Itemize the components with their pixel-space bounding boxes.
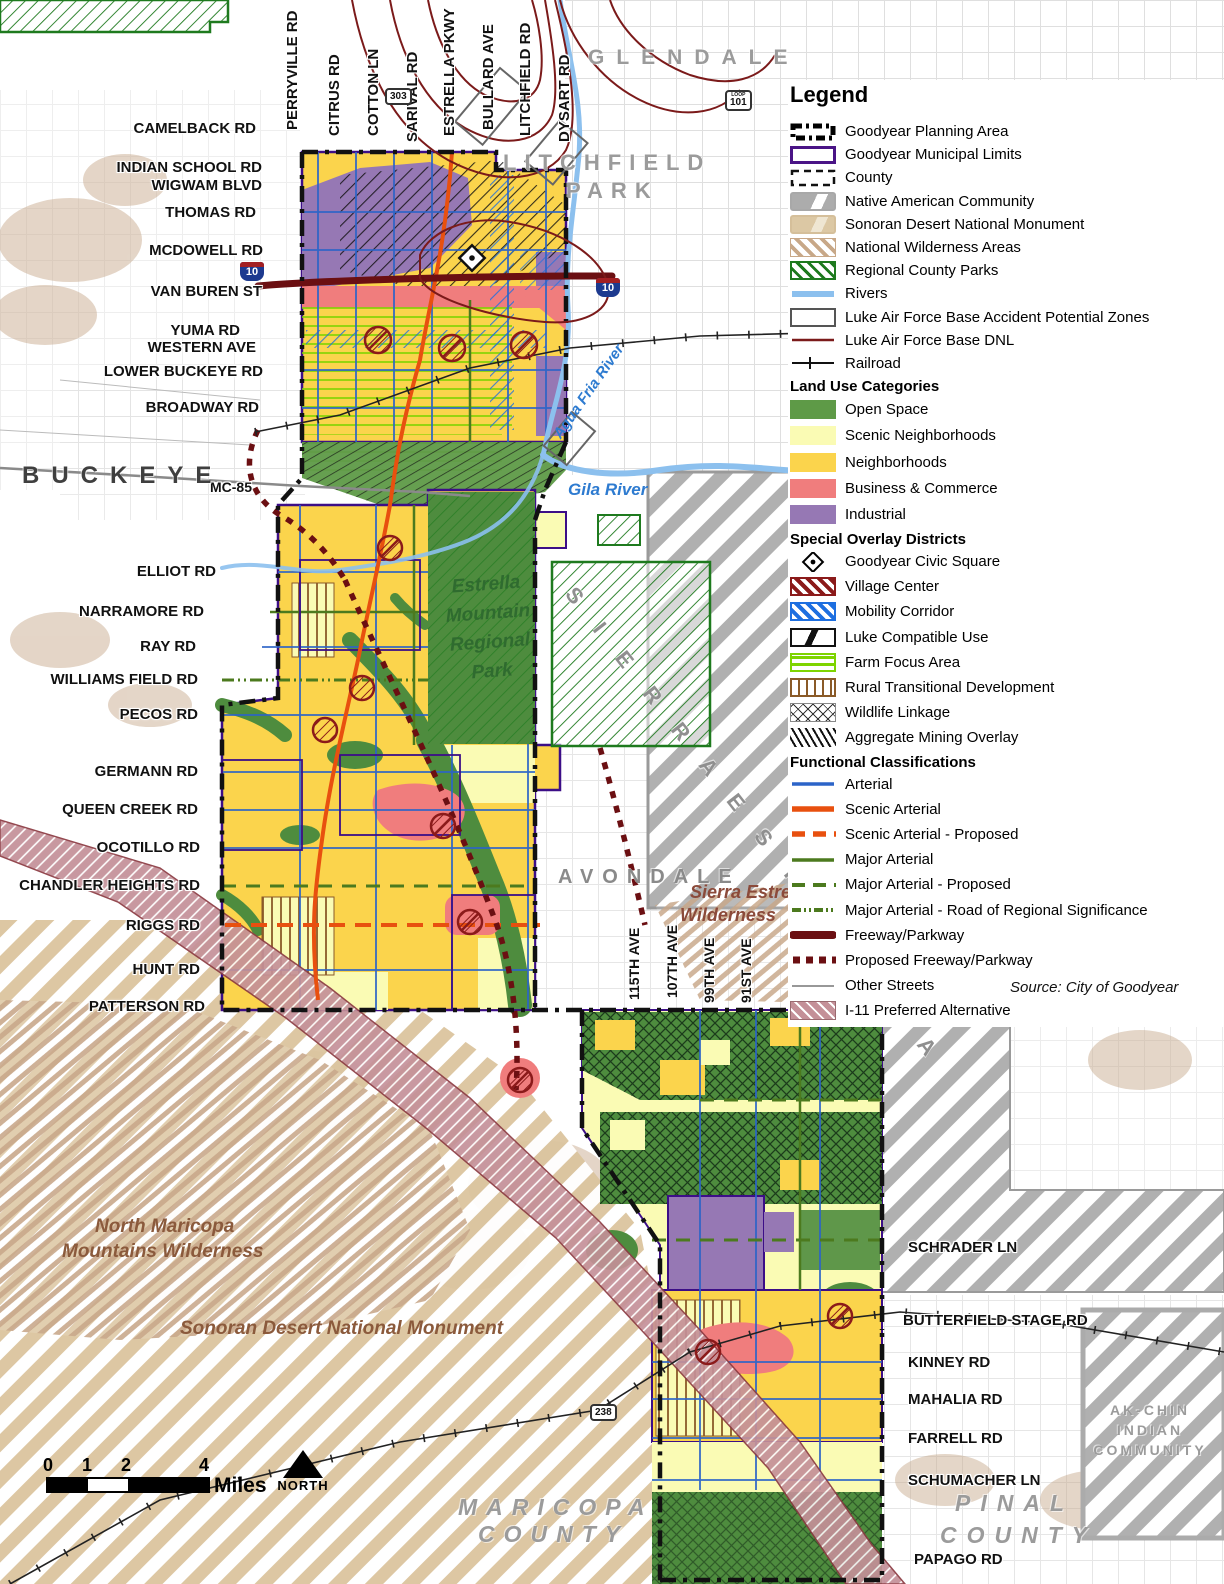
north-arrow: NORTH — [268, 1450, 338, 1493]
legend-item-industrial: Industrial — [790, 502, 1224, 528]
legend-item-luke-compatible: Luke Compatible Use — [790, 625, 1224, 650]
road-label-thomas: THOMAS RD — [165, 204, 256, 221]
i10-shield-west: 10 — [240, 262, 264, 281]
wilderness-label-nmm-2: Mountains Wilderness — [62, 1241, 263, 1263]
rivers-swatch — [790, 284, 836, 304]
mobility-corridor — [490, 175, 514, 430]
mobility-corridor-swatch — [790, 602, 836, 621]
scenic-arterial-swatch — [790, 799, 836, 819]
rural-transitional-swatch — [790, 678, 836, 697]
road-label-schrader: SCHRADER LN — [908, 1239, 1017, 1256]
i11-swatch — [790, 1001, 836, 1020]
legend-item-business-commerce: Business & Commerce — [790, 475, 1224, 501]
north-block — [302, 152, 566, 472]
road-label-papago: PAPAGO RD — [914, 1551, 1003, 1568]
railroad-swatch — [790, 353, 836, 373]
place-maricopa-2: COUNTY — [478, 1521, 629, 1548]
place-pinal-1: PINAL — [955, 1490, 1074, 1517]
legend-item-scenic-arterial: Scenic Arterial — [790, 797, 1224, 822]
legend-item-native-community: Native American Community — [790, 190, 1224, 213]
road-label-bullard: BULLARD AVE — [480, 24, 497, 130]
road-label-western: WESTERN AVE — [148, 339, 256, 356]
road-label-wigwam: WIGWAM BLVD — [151, 177, 262, 194]
place-buckeye: BUCKEYE — [22, 462, 223, 490]
legend-item-i11: I-11 Preferred Alternative — [790, 998, 1224, 1023]
place-litchfield-1: LITCHFIELD — [503, 150, 711, 176]
road-label-camelback: CAMELBACK RD — [134, 120, 257, 137]
scenic-neighborhoods-swatch — [790, 426, 836, 445]
sonoran-monument-swatch — [790, 215, 836, 234]
scale-unit-label: Miles — [214, 1474, 267, 1498]
road-label-williams-field: WILLIAMS FIELD RD — [51, 671, 198, 688]
legend-item-mobility-corridor: Mobility Corridor — [790, 599, 1224, 624]
legend-item-luke-apz: Luke Air Force Base Accident Potential Z… — [790, 306, 1224, 329]
place-pinal-2: COUNTY — [940, 1522, 1097, 1549]
route238-shield: 238 — [590, 1404, 617, 1421]
route303-shield: 303 — [385, 88, 412, 105]
road-label-broadway: BROADWAY RD — [146, 399, 259, 416]
road-label-cotton: COTTON LN — [365, 49, 382, 136]
native-community-swatch — [790, 192, 836, 211]
place-akchin-3: COMMUNITY — [1080, 1442, 1220, 1458]
planning-area-swatch — [790, 122, 836, 142]
legend-item-neighborhoods: Neighborhoods — [790, 449, 1224, 475]
road-label-germann: GERMANN RD — [95, 763, 198, 780]
legend-item-freeway: Freeway/Parkway — [790, 923, 1224, 948]
legend-item-luke-dnl: Luke Air Force Base DNL — [790, 329, 1224, 352]
legend-item-aggregate-mining: Aggregate Mining Overlay — [790, 725, 1224, 750]
legend-item-county-parks: Regional County Parks — [790, 259, 1224, 282]
place-akchin-1: AK-CHIN — [1080, 1402, 1220, 1418]
freeway-swatch — [790, 925, 836, 945]
legend-title: Legend — [790, 82, 1224, 108]
road-label-chandler-heights: CHANDLER HEIGHTS RD — [19, 877, 200, 894]
road-label-91st: 91ST AVE — [738, 938, 754, 1003]
scale-bar-segments — [46, 1477, 210, 1493]
monument-label-sonoran: Sonoran Desert National Monument — [180, 1318, 503, 1340]
regional-park-topleft — [0, 0, 228, 32]
road-label-115th: 115TH AVE — [626, 928, 642, 1000]
road-label-litchfield: LITCHFIELD RD — [517, 23, 534, 136]
road-label-pecos: PECOS RD — [120, 706, 198, 723]
place-glendale: GLENDALE — [588, 46, 800, 70]
industrial-swatch — [790, 505, 836, 524]
place-maricopa-1: MARICOPA — [458, 1494, 654, 1521]
road-label-citrus: CITRUS RD — [326, 54, 343, 136]
municipal-limits-swatch — [790, 146, 836, 164]
i10-shield-east: 10 — [596, 278, 620, 297]
legend-item-planning-area: Goodyear Planning Area — [790, 120, 1224, 143]
place-akchin-2: INDIAN — [1080, 1422, 1220, 1438]
road-label-schumacher: SCHUMACHER LN — [908, 1472, 1041, 1489]
road-label-mahalia: MAHALIA RD — [908, 1391, 1002, 1408]
road-label-yuma: YUMA RD — [171, 322, 240, 339]
village-center-swatch — [790, 577, 836, 596]
map-stage: CAMELBACK RD INDIAN SCHOOL RD WIGWAM BLV… — [0, 0, 1224, 1584]
legend-item-civic-square: Goodyear Civic Square — [790, 549, 1224, 574]
arterial-swatch — [790, 774, 836, 794]
road-label-estrella-pkwy: ESTRELLA PKWY — [441, 8, 458, 136]
legend-item-farm-focus: Farm Focus Area — [790, 650, 1224, 675]
road-label-van-buren: VAN BUREN ST — [151, 283, 262, 300]
wilderness-swatch — [790, 238, 836, 257]
road-label-99th: 99TH AVE — [701, 938, 717, 1003]
legend-item-major-arterial: Major Arterial — [790, 847, 1224, 872]
wilderness-label-nmm-1: North Maricopa — [95, 1216, 234, 1238]
legend-header-functional: Functional Classifications — [790, 754, 1224, 771]
legend-item-sonoran-monument: Sonoran Desert National Monument — [790, 213, 1224, 236]
legend-panel: Legend Goodyear Planning Area Goodyear M… — [788, 80, 1224, 1027]
legend-item-proposed-freeway: Proposed Freeway/Parkway — [790, 948, 1224, 973]
river-label-gila: Gila River — [568, 480, 647, 500]
legend-item-major-arterial-rrs: Major Arterial - Road of Regional Signif… — [790, 897, 1224, 922]
place-litchfield-2: PARK — [566, 178, 659, 204]
road-label-hunt: HUNT RD — [133, 961, 201, 978]
legend-item-major-arterial-proposed: Major Arterial - Proposed — [790, 872, 1224, 897]
major-arterial-proposed-swatch — [790, 875, 836, 895]
road-label-perryville: PERRYVILLE RD — [284, 11, 301, 130]
county-swatch — [790, 168, 836, 188]
county-parks-swatch — [790, 261, 836, 280]
business-commerce-swatch — [790, 479, 836, 498]
road-label-elliot: ELLIOT RD — [137, 563, 216, 580]
road-label-kinney: KINNEY RD — [908, 1354, 990, 1371]
legend-item-railroad: Railroad — [790, 352, 1224, 375]
road-label-queen-creek: QUEEN CREEK RD — [62, 801, 198, 818]
road-label-mcdowell: MCDOWELL RD — [149, 242, 263, 259]
road-label-107th: 107TH AVE — [664, 925, 680, 998]
road-label-ocotillo: OCOTILLO RD — [97, 839, 200, 856]
legend-item-scenic-neighborhoods: Scenic Neighborhoods — [790, 422, 1224, 448]
loop101-shield: LOOP101 — [725, 90, 752, 111]
legend-header-land-use: Land Use Categories — [790, 378, 1224, 395]
north-arrow-icon — [283, 1450, 323, 1478]
luke-dnl-swatch — [790, 330, 836, 350]
road-label-narramore: NARRAMORE RD — [79, 603, 204, 620]
road-label-riggs: RIGGS RD — [126, 917, 200, 934]
neighborhoods-swatch — [790, 453, 836, 472]
legend-item-wilderness-areas: National Wilderness Areas — [790, 236, 1224, 259]
legend-item-open-space: Open Space — [790, 396, 1224, 422]
major-arterial-swatch — [790, 850, 836, 870]
source-credit: Source: City of Goodyear — [1010, 979, 1178, 996]
open-space-swatch — [790, 400, 836, 419]
legend-item-wildlife-linkage: Wildlife Linkage — [790, 700, 1224, 725]
luke-apz-swatch — [790, 308, 836, 327]
legend-item-arterial: Arterial — [790, 772, 1224, 797]
farm-focus-swatch — [790, 653, 836, 672]
road-label-dysart: DYSART RD — [556, 54, 573, 142]
proposed-freeway-swatch — [790, 950, 836, 970]
aggregate-mining-swatch — [790, 728, 836, 747]
legend-item-rural-transitional: Rural Transitional Development — [790, 675, 1224, 700]
legend-header-overlay: Special Overlay Districts — [790, 531, 1224, 548]
other-streets-swatch — [790, 976, 836, 996]
scenic-arterial-proposed-swatch — [790, 824, 836, 844]
legend-item-county: County — [790, 166, 1224, 189]
legend-item-municipal-limits: Goodyear Municipal Limits — [790, 143, 1224, 166]
road-label-farrell: FARRELL RD — [908, 1430, 1003, 1447]
road-label-indian-school: INDIAN SCHOOL RD — [116, 159, 262, 176]
road-label-lower-buckeye: LOWER BUCKEYE RD — [104, 363, 263, 380]
park-label: Estrella Mountain Regional Park — [424, 566, 554, 690]
scale-ticks: 0 1 2 4 — [46, 1455, 210, 1473]
civic-square-icon — [790, 552, 836, 572]
road-label-ray: RAY RD — [140, 638, 196, 655]
legend-item-scenic-arterial-proposed: Scenic Arterial - Proposed — [790, 822, 1224, 847]
legend-item-rivers: Rivers — [790, 282, 1224, 305]
wildlife-linkage-swatch — [790, 703, 836, 722]
road-label-butterfield: BUTTERFIELD STAGE RD — [903, 1312, 1088, 1329]
legend-item-village-center: Village Center — [790, 574, 1224, 599]
scale-bar: 0 1 2 4 — [46, 1455, 210, 1493]
luke-compatible-swatch — [790, 628, 836, 647]
major-arterial-rrs-swatch — [790, 900, 836, 920]
road-label-patterson: PATTERSON RD — [89, 998, 205, 1015]
wilderness-label-sierra-2: Wilderness — [680, 905, 776, 926]
